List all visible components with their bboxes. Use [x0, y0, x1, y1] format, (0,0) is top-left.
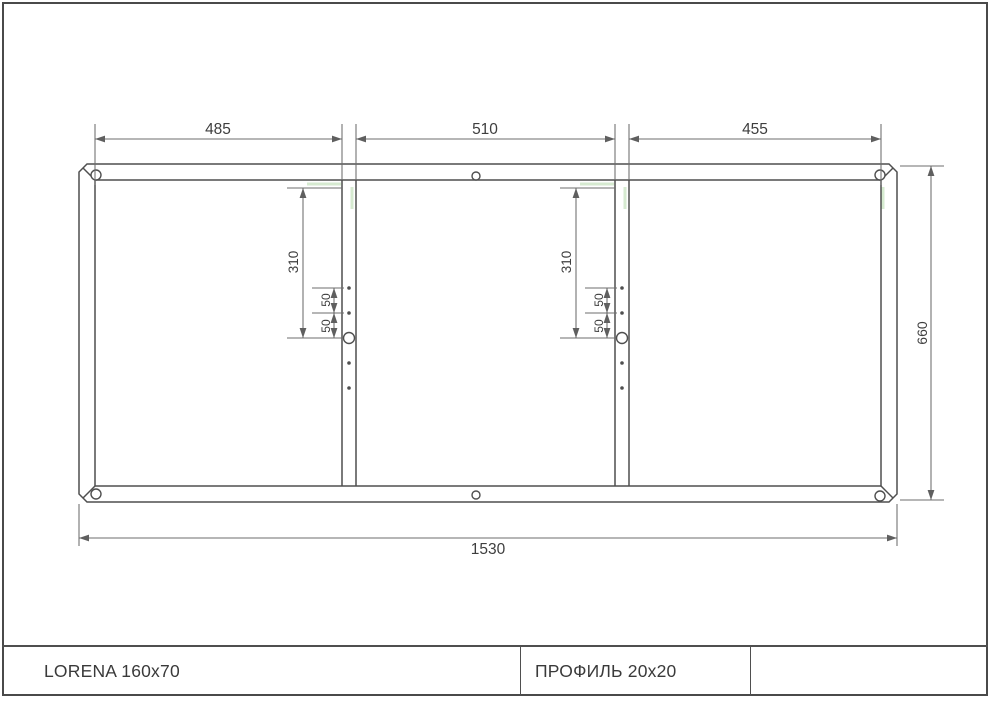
pilot-hole [347, 361, 351, 365]
rail-hole [472, 172, 480, 180]
corner-hole [91, 170, 101, 180]
member-hole [617, 333, 628, 344]
dim-label-310-m2: 310 [559, 251, 574, 274]
frame-inner-outline [95, 180, 881, 486]
pilot-hole [347, 386, 351, 390]
pilot-hole [620, 286, 624, 290]
title-block: LORENA 160x70 ПРОФИЛЬ 20x20 [2, 645, 988, 696]
corner-hole [875, 170, 885, 180]
corner-hole [875, 491, 885, 501]
drawing-sheet: 485 510 455 1530 660 310 50 50 310 50 50… [0, 0, 1000, 708]
dimension-lines [79, 124, 944, 546]
profile-label: ПРОФИЛЬ 20x20 [535, 661, 676, 682]
part-name-label: LORENA 160x70 [44, 661, 180, 682]
title-block-empty-cell [750, 647, 988, 696]
rail-hole [472, 491, 480, 499]
dim-label-510: 510 [472, 121, 498, 138]
frame-geometry [79, 164, 897, 502]
pilot-hole [620, 361, 624, 365]
dim-label-50a-m2: 50 [592, 293, 606, 307]
pilot-hole [347, 286, 351, 290]
pilot-hole [620, 386, 624, 390]
frame-technical-drawing: 485 510 455 1530 660 310 50 50 310 50 50 [0, 0, 1000, 708]
title-block-part-name: LORENA 160x70 [2, 647, 520, 696]
dim-label-50b-m2: 50 [592, 319, 606, 333]
corner-hole [91, 489, 101, 499]
dim-label-310-m1: 310 [286, 251, 301, 274]
dim-label-455: 455 [742, 121, 768, 138]
dim-label-1530: 1530 [471, 541, 506, 558]
title-block-profile: ПРОФИЛЬ 20x20 [520, 647, 750, 696]
dim-label-50a-m1: 50 [319, 293, 333, 307]
dim-label-485: 485 [205, 121, 231, 138]
dim-label-50b-m1: 50 [319, 319, 333, 333]
member-hole [344, 333, 355, 344]
dimension-labels: 485 510 455 1530 660 310 50 50 310 50 50 [205, 121, 930, 558]
dim-label-660: 660 [914, 321, 930, 345]
pilot-hole [347, 311, 351, 315]
frame-outline [79, 164, 897, 502]
holes [91, 170, 885, 501]
pilot-hole [620, 311, 624, 315]
